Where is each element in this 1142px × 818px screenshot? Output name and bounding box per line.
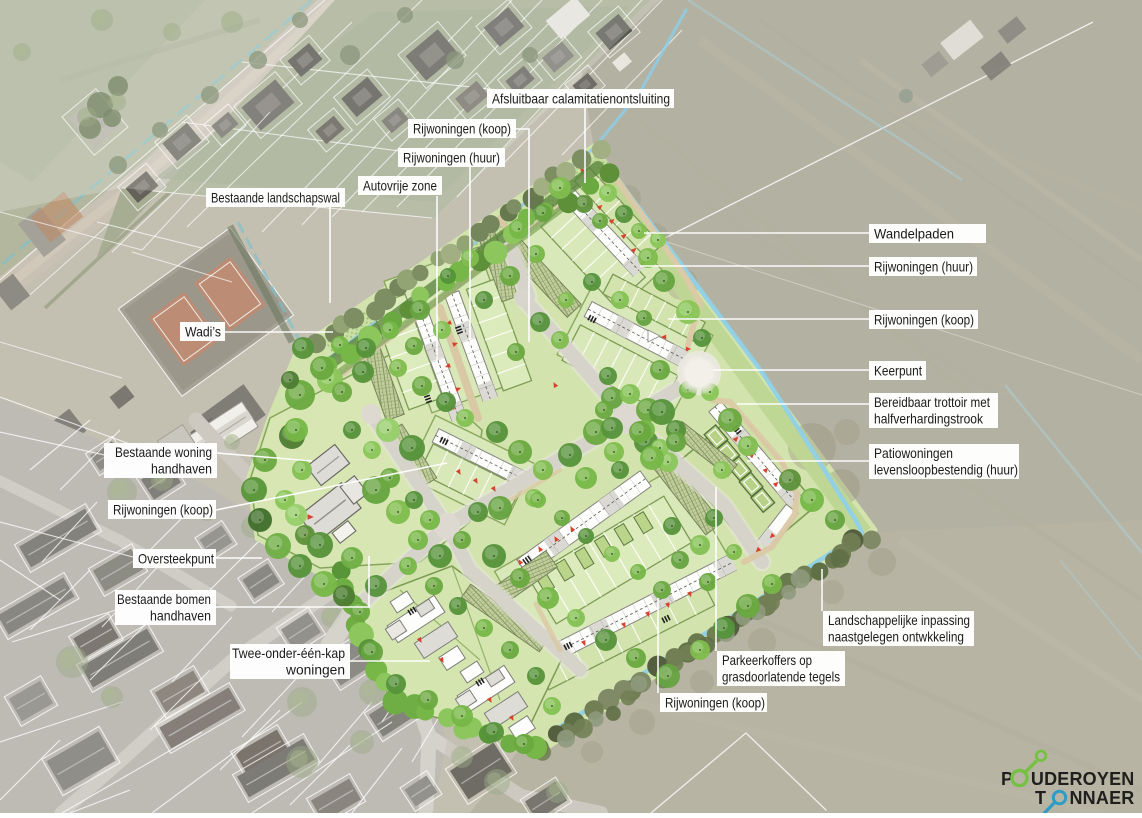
svg-text:Parkeerkoffers op: Parkeerkoffers op: [722, 653, 812, 668]
svg-text:Bestaande landschapswal: Bestaande landschapswal: [211, 190, 340, 205]
svg-text:Oversteekpunt: Oversteekpunt: [138, 551, 214, 566]
svg-text:Rijwoningen (huur): Rijwoningen (huur): [403, 150, 500, 165]
svg-text:Rijwoningen (koop): Rijwoningen (koop): [113, 502, 213, 517]
svg-text:Wadi’s: Wadi’s: [185, 324, 221, 339]
svg-text:UDEROYEN: UDEROYEN: [1031, 769, 1135, 789]
svg-text:handhaven: handhaven: [150, 609, 211, 624]
svg-text:Wandelpaden: Wandelpaden: [874, 226, 954, 241]
svg-text:Landschappelijke inpassing: Landschappelijke inpassing: [828, 613, 970, 628]
svg-text:Bestaande woning: Bestaande woning: [115, 445, 212, 460]
svg-text:Rijwoningen (koop): Rijwoningen (koop): [665, 695, 765, 710]
svg-text:NNAER: NNAER: [1069, 788, 1134, 808]
svg-text:Bestaande bomen: Bestaande bomen: [117, 592, 211, 607]
svg-text:Autovrije zone: Autovrije zone: [363, 178, 437, 193]
svg-text:Afsluitbaar calamitatienontslu: Afsluitbaar calamitatienontsluiting: [492, 91, 670, 106]
svg-text:Rijwoningen (huur): Rijwoningen (huur): [874, 259, 973, 274]
svg-text:Rijwoningen (koop): Rijwoningen (koop): [874, 312, 974, 327]
svg-text:Rijwoningen (koop): Rijwoningen (koop): [413, 121, 511, 136]
svg-text:grasdoorlatende tegels: grasdoorlatende tegels: [722, 670, 840, 685]
svg-text:Keerpunt: Keerpunt: [874, 363, 922, 378]
svg-text:T: T: [1035, 788, 1046, 808]
svg-text:Bereidbaar trottoir met: Bereidbaar trottoir met: [874, 395, 990, 410]
svg-text:Twee-onder-één-kap: Twee-onder-één-kap: [232, 646, 345, 661]
svg-text:levensloopbestendig (huur): levensloopbestendig (huur): [874, 463, 1018, 478]
svg-text:woningen: woningen: [285, 663, 345, 678]
svg-text:halfverhardingstrook: halfverhardingstrook: [874, 412, 983, 427]
svg-text:handhaven: handhaven: [151, 462, 212, 477]
svg-text:Patiowoningen: Patiowoningen: [874, 446, 953, 461]
svg-text:naastgelegen ontwkkeling: naastgelegen ontwkkeling: [828, 630, 964, 645]
